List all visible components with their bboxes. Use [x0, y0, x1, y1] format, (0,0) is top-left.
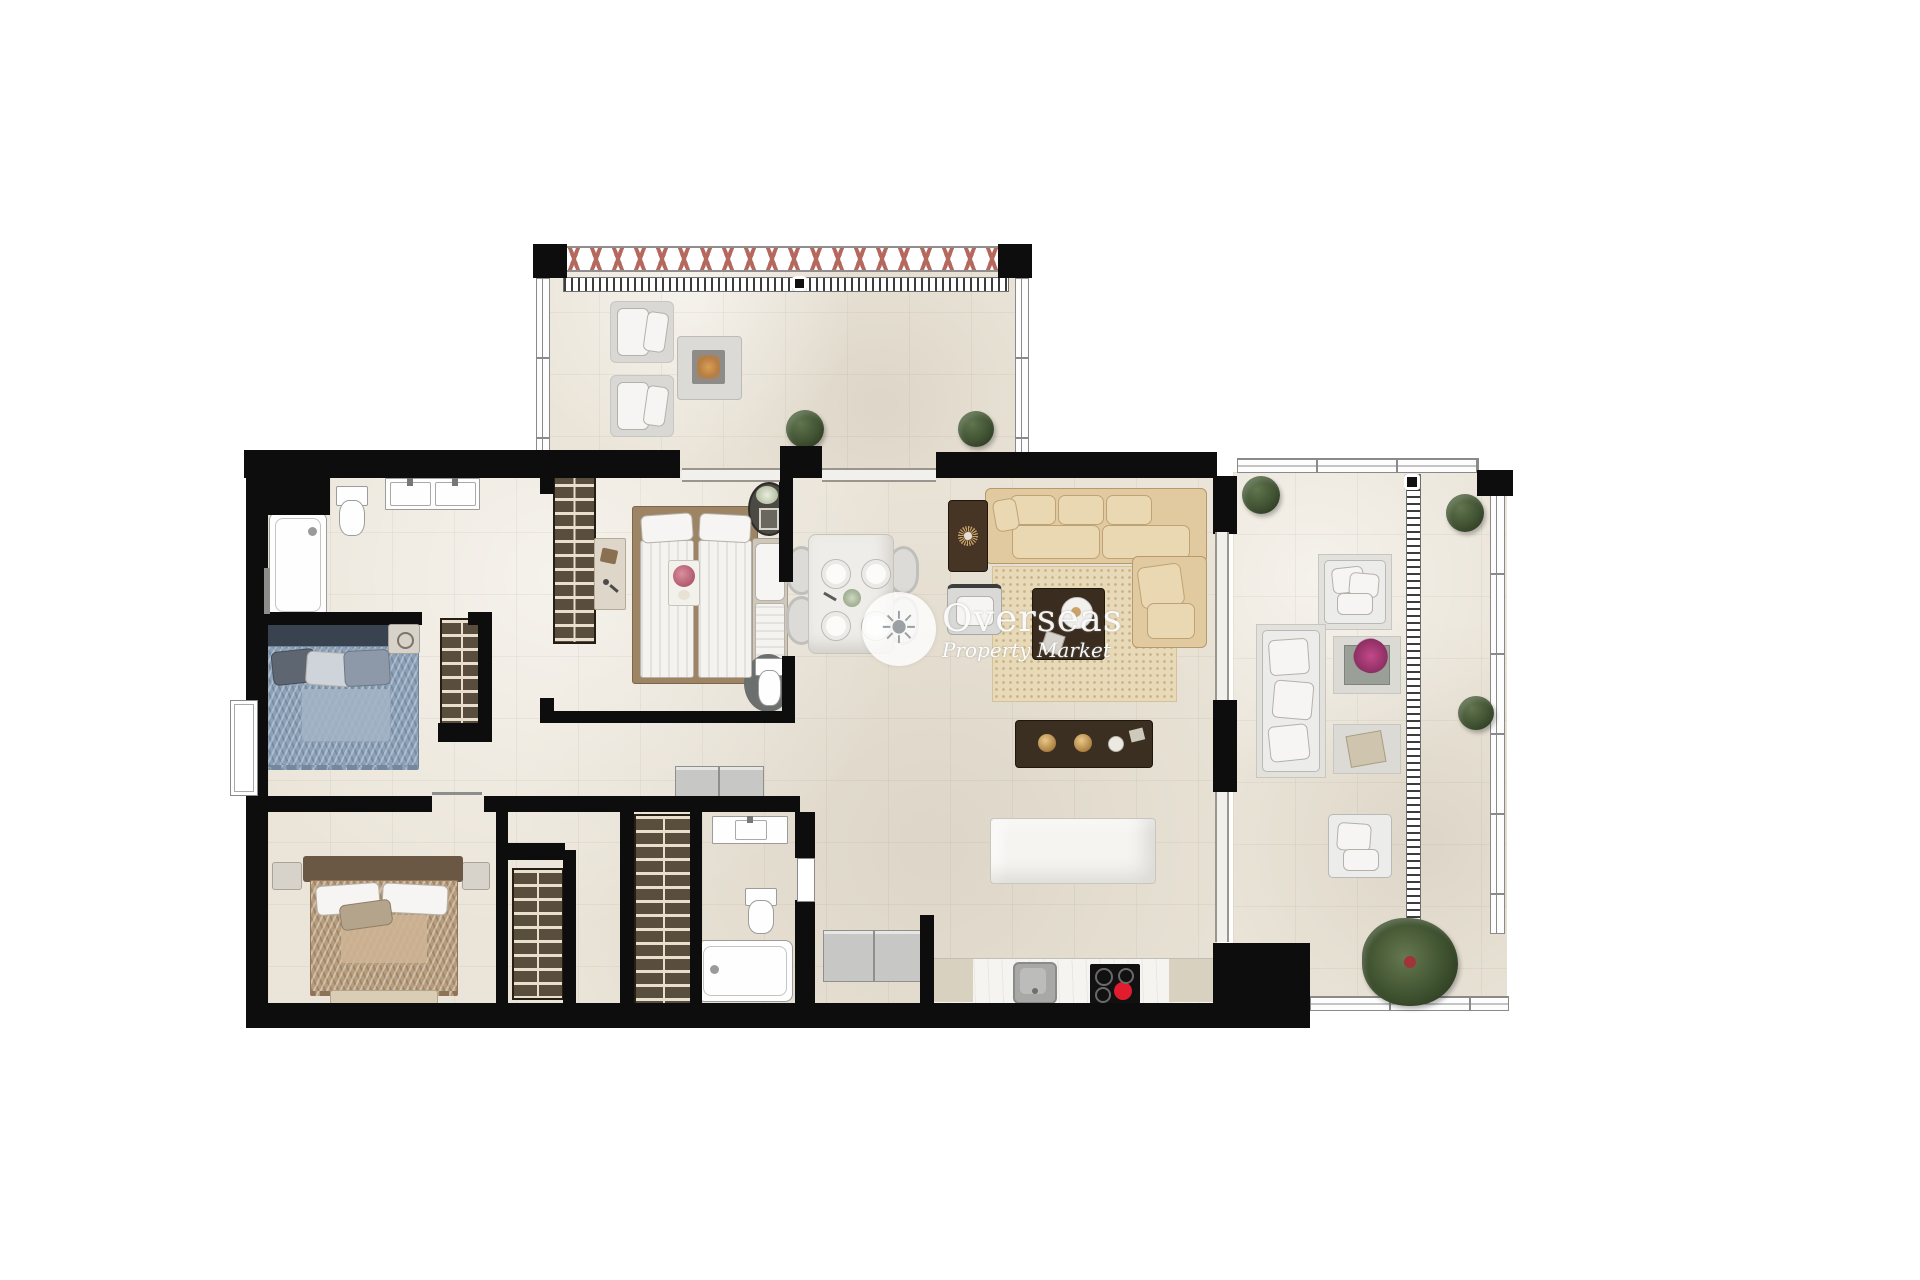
- fridge-unit: [874, 930, 924, 982]
- double-bed-master: [698, 540, 752, 678]
- kitchen-counter: [932, 958, 1215, 1005]
- terrace-rail-right: [1015, 278, 1029, 460]
- sun-lounger: [610, 375, 674, 437]
- wall: [1213, 476, 1237, 534]
- fire-pit-table: [677, 336, 742, 400]
- nightstand: [272, 862, 302, 890]
- wall: [782, 656, 795, 712]
- wall: [484, 796, 800, 812]
- pillow: [640, 512, 694, 544]
- bed-runner-decor: [668, 560, 700, 606]
- pergola-ornament: [792, 276, 807, 291]
- outdoor-side-table: [1333, 724, 1401, 774]
- sliding-door: [822, 468, 936, 482]
- pillow: [698, 513, 751, 544]
- wall: [780, 446, 822, 478]
- wall: [503, 843, 565, 860]
- coffee-table: [1032, 588, 1105, 660]
- armchair: [947, 584, 1002, 635]
- window: [230, 700, 258, 796]
- wall: [563, 850, 576, 1005]
- terrace-x-railing: [563, 246, 1000, 272]
- wall: [920, 915, 934, 1005]
- console-sunburst: [948, 500, 988, 572]
- vanity: [712, 816, 788, 844]
- floor-plan: ☀ Overseas Property Market: [0, 0, 1920, 1280]
- fridge-unit: [823, 930, 874, 982]
- pergola-ornament: [1404, 474, 1420, 490]
- sliding-door: [1215, 532, 1229, 700]
- wardrobe: [553, 468, 596, 644]
- induction-hob: [1090, 964, 1140, 1004]
- kitchen-island-marble: [990, 818, 1156, 884]
- wall: [438, 723, 490, 742]
- wall: [779, 478, 793, 582]
- bathtub: [697, 940, 793, 1002]
- table-centerpiece: [843, 589, 861, 607]
- wall: [545, 711, 795, 723]
- terrace-plant: [1242, 476, 1280, 514]
- wall: [620, 812, 634, 1005]
- door-leaf: [797, 858, 815, 902]
- bathtub: [269, 512, 327, 618]
- toilet-bowl: [758, 670, 781, 706]
- pillow: [343, 649, 391, 687]
- terrace-rail-left: [536, 278, 550, 460]
- cutlery: [823, 592, 837, 602]
- sun-lounger: [610, 301, 674, 363]
- wall: [540, 470, 554, 494]
- toilet-bowl: [748, 900, 774, 934]
- dresser: [594, 538, 626, 610]
- nightstand: [388, 624, 420, 654]
- l-shaped-sofa: [985, 488, 1207, 564]
- sofa-chaise: [1132, 556, 1207, 648]
- wall: [1213, 943, 1310, 1028]
- wall: [540, 698, 554, 723]
- terrace-plant: [958, 411, 994, 447]
- door-leaf: [432, 792, 482, 795]
- kitchen-sink: [1013, 962, 1057, 1004]
- double-vanity: [385, 478, 480, 510]
- terrace-post-right: [998, 244, 1032, 278]
- wardrobe: [512, 868, 564, 1000]
- door-leaf: [264, 568, 270, 614]
- wall-terrace-post: [1477, 470, 1513, 496]
- terrace-plant: [1458, 696, 1494, 730]
- pergola-strip: [563, 277, 1009, 292]
- terrace-rail-top: [1237, 458, 1479, 473]
- nightstand: [462, 862, 490, 890]
- sliding-door: [682, 468, 780, 482]
- active-burner: [1114, 982, 1132, 1000]
- palm-plant: [1362, 918, 1458, 1006]
- wall-bottom: [246, 1003, 1310, 1028]
- terrace-plant: [786, 410, 824, 448]
- outdoor-sofa: [1262, 630, 1320, 772]
- sliding-door: [1215, 792, 1229, 942]
- outdoor-armchair: [1324, 560, 1386, 624]
- kitchen-island-dark-pendants: [1015, 720, 1153, 768]
- wall: [1213, 700, 1237, 792]
- headboard: [303, 856, 463, 882]
- wall: [795, 812, 815, 858]
- wall: [795, 900, 815, 1005]
- terrace-post-left: [533, 244, 567, 278]
- wall: [936, 452, 1217, 478]
- terrace-plant: [1446, 494, 1484, 532]
- wall: [496, 812, 508, 1005]
- outdoor-armchair: [1328, 814, 1392, 878]
- wall: [690, 812, 702, 1005]
- toilet-bowl: [339, 500, 365, 536]
- wall: [246, 796, 432, 812]
- dining-table-marble: [808, 534, 894, 654]
- wardrobe: [634, 814, 694, 1008]
- outdoor-coffee-table: [1333, 636, 1401, 694]
